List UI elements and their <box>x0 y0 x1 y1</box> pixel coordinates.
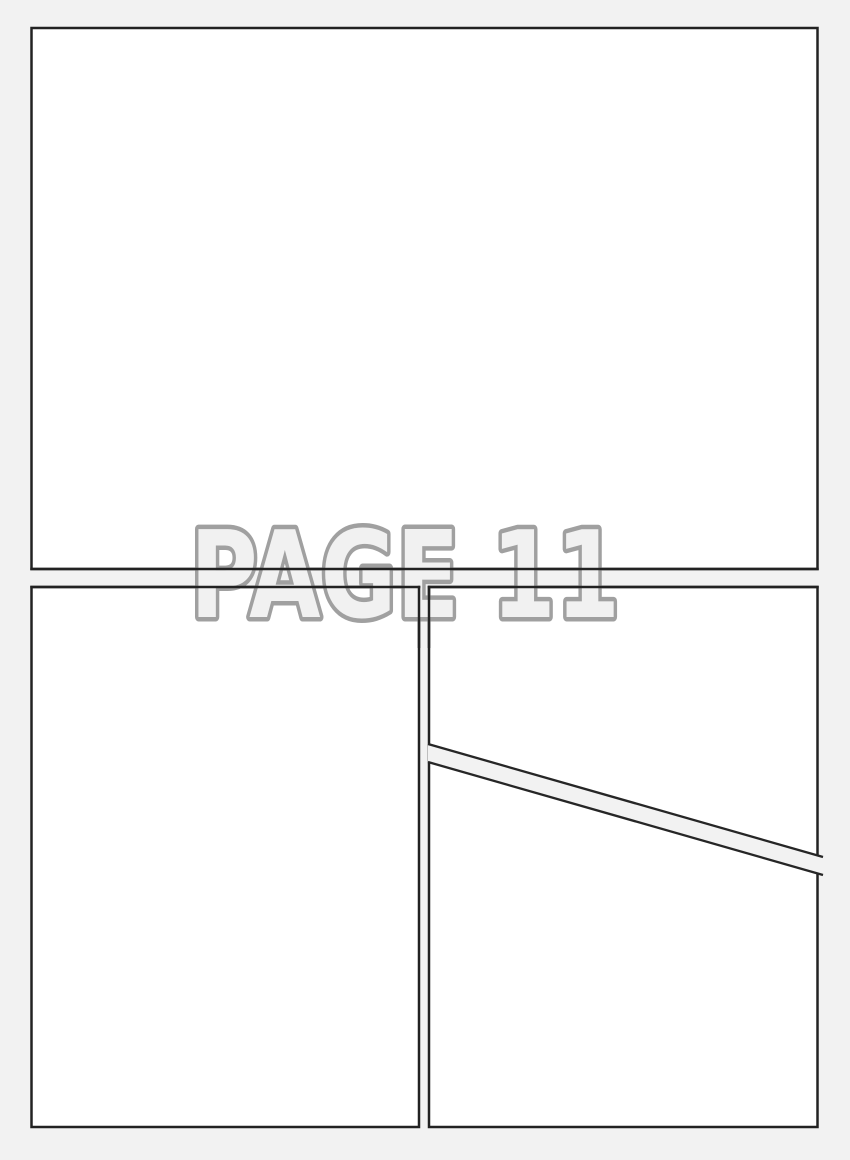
bottom-left-panel <box>32 587 420 1127</box>
comic-page-svg: PAGE 11 <box>0 0 850 1160</box>
comic-page-template: PAGE 11 <box>0 0 850 1160</box>
page-number-label: PAGE 11 <box>190 507 620 646</box>
top-panel <box>32 28 818 569</box>
